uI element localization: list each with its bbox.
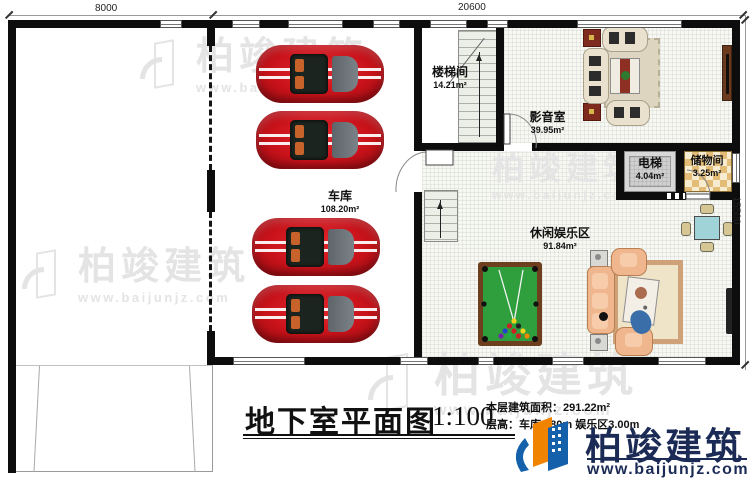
room-area: 14.21m² (415, 80, 485, 90)
room-area: 39.95m² (505, 125, 590, 135)
coffee-table (610, 58, 640, 94)
dimension-right: 15500 (730, 197, 741, 225)
chair-icon (700, 242, 714, 252)
window (478, 357, 494, 365)
watermark-name: 柏竣建筑 (78, 248, 250, 286)
garage-door-dashed-line (209, 212, 212, 331)
window (552, 357, 584, 365)
room-area: 3.25m² (681, 168, 733, 178)
brand-url: www.baijunjz.com (587, 461, 749, 479)
dimension-top-right: 20600 (458, 2, 486, 13)
floor-plan-canvas: 柏竣建筑 www.baijunjz.com 柏竣建筑 www.baijunjz.… (0, 0, 750, 483)
dimension-line (8, 15, 745, 16)
car-icon (252, 218, 380, 276)
ramp-slope-line (189, 366, 196, 472)
wall (207, 170, 215, 212)
room-label-garage: 车库 108.20m² (295, 190, 385, 214)
billiard-table-icon (478, 262, 542, 346)
door-garage (392, 148, 458, 196)
room-label-stairwell: 楼梯间 14.21m² (415, 66, 485, 90)
leisure-sofa-set (585, 248, 685, 354)
stair-direction-arrow (440, 200, 441, 238)
watermark-url: www.baijunjz.com (78, 290, 250, 305)
armchair (611, 248, 647, 276)
room-label-media: 影音室 39.95m² (505, 111, 590, 135)
window (487, 20, 508, 28)
window (577, 20, 682, 28)
wall (532, 143, 732, 151)
room-name: 储物间 (681, 155, 733, 168)
window (232, 20, 260, 28)
watermark-building-icon (140, 39, 186, 95)
sofa (606, 100, 650, 126)
room-name: 电梯 (624, 157, 676, 171)
side-table-icon (590, 334, 608, 351)
watermark-building-icon (22, 249, 68, 305)
room-area: 91.84m² (500, 241, 620, 251)
room-name: 影音室 (505, 111, 590, 125)
room-label-elevator: 电梯 4.04m² (624, 157, 676, 181)
room-label-storage: 储物间 3.25m² (681, 155, 733, 178)
room-name: 车库 (295, 190, 385, 204)
window (658, 357, 706, 365)
wall (732, 20, 740, 365)
window (400, 357, 428, 365)
window (233, 357, 305, 365)
sofa (602, 26, 648, 52)
car-icon (256, 111, 384, 169)
window (160, 20, 182, 28)
chair-icon (700, 204, 714, 214)
garage-door-dashed-line (209, 46, 212, 170)
brand-logo: 柏竣建筑 www.baijunjz.com (505, 410, 748, 478)
stair-direction-arrow (479, 52, 480, 137)
wall (207, 20, 215, 46)
window (288, 20, 343, 28)
driveway-ramp (14, 365, 213, 472)
car-icon (252, 285, 380, 343)
brand-rule (587, 458, 747, 460)
title-underline (243, 438, 515, 439)
brand-building-icon (507, 412, 585, 478)
side-table-icon (590, 250, 608, 267)
sofa (587, 266, 615, 334)
room-name: 楼梯间 (415, 66, 485, 80)
window (430, 20, 467, 28)
dimension-top-left: 8000 (95, 3, 117, 14)
room-area: 108.20m² (295, 204, 385, 214)
wall (207, 331, 215, 365)
room-label-leisure: 休闲娱乐区 91.84m² (500, 227, 620, 251)
title-underline (243, 434, 515, 436)
dimension-line (745, 15, 746, 370)
dining-table (694, 216, 720, 240)
garage-steps (424, 190, 458, 242)
watermark: 柏竣建筑 www.baijunjz.com (22, 248, 250, 305)
room-name: 休闲娱乐区 (500, 227, 620, 241)
wall-striped (662, 192, 686, 200)
window (732, 153, 740, 183)
ramp-slope-line (33, 366, 40, 472)
wall (414, 192, 422, 357)
media-sofa-set (580, 26, 665, 124)
room-area: 4.04m² (624, 171, 676, 181)
side-table-icon (583, 29, 601, 47)
wall (8, 20, 16, 473)
drawing-scale: 1:100 (432, 401, 494, 432)
window (373, 20, 400, 28)
car-icon (256, 45, 384, 103)
tv-cabinet (722, 45, 732, 101)
person-head (599, 312, 608, 321)
wall (616, 192, 662, 200)
chair-icon (681, 222, 691, 236)
sofa (583, 48, 609, 104)
